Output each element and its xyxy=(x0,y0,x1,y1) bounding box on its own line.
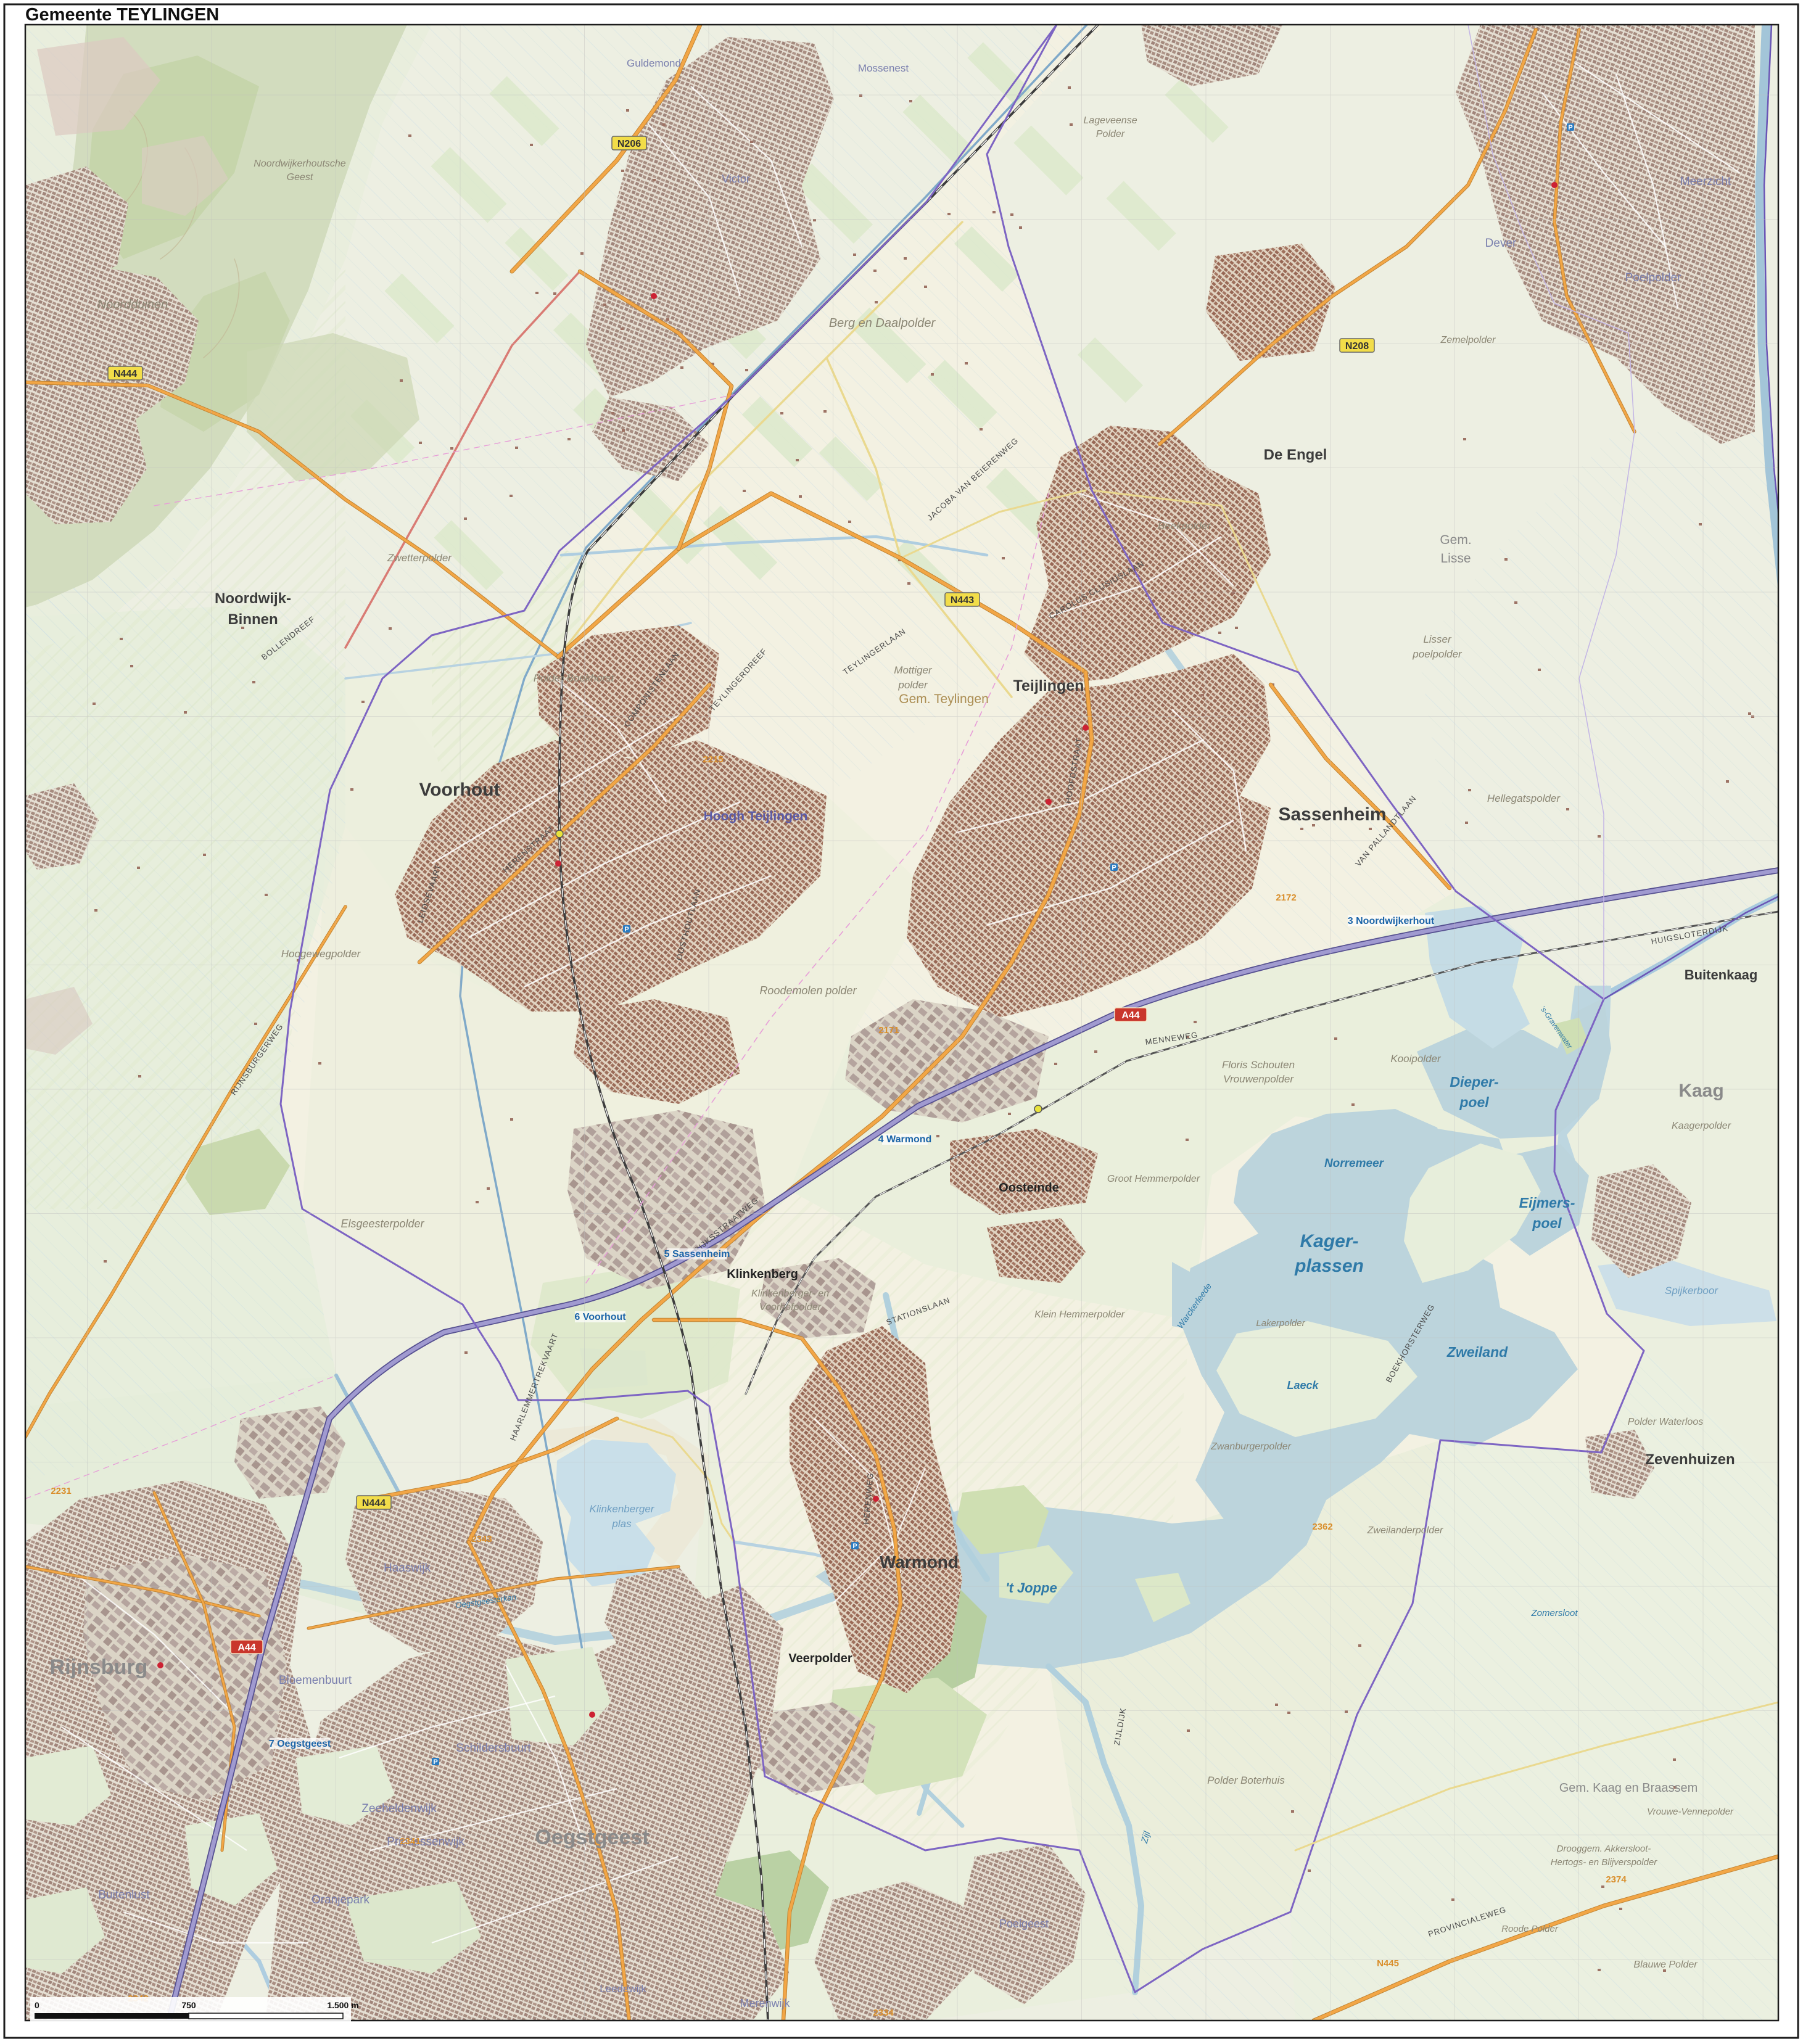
svg-text:5 Sassenheim: 5 Sassenheim xyxy=(664,1249,730,1259)
svg-text:2334: 2334 xyxy=(873,2008,894,2018)
svg-text:Polder Boekhorst: Polder Boekhorst xyxy=(534,672,615,684)
svg-text:plassen: plassen xyxy=(1294,1256,1364,1276)
svg-text:Beekpolder: Beekpolder xyxy=(1158,520,1211,532)
svg-text:N206: N206 xyxy=(617,139,641,149)
svg-text:Lisser: Lisser xyxy=(1423,633,1452,645)
svg-text:Oranjepark: Oranjepark xyxy=(312,1894,369,1906)
svg-text:2171: 2171 xyxy=(878,1025,899,1036)
svg-text:poel: poel xyxy=(1459,1094,1489,1110)
svg-text:Buitenlust: Buitenlust xyxy=(98,1889,150,1902)
svg-text:Polder: Polder xyxy=(1096,129,1125,139)
svg-text:Klinkenberger: Klinkenberger xyxy=(590,1503,655,1515)
svg-text:Mossenest: Mossenest xyxy=(858,62,909,74)
svg-text:Norremeer: Norremeer xyxy=(1324,1157,1385,1170)
svg-text:Sassenheim: Sassenheim xyxy=(1278,804,1386,825)
svg-text:P: P xyxy=(624,926,629,933)
svg-text:Zwetterpolder: Zwetterpolder xyxy=(387,552,452,564)
svg-text:N444: N444 xyxy=(362,1498,386,1509)
svg-text:Leedewijk: Leedewijk xyxy=(600,1983,646,1995)
svg-text:Schildersbuurt: Schildersbuurt xyxy=(456,1742,531,1755)
svg-text:Klinkenberg: Klinkenberg xyxy=(727,1267,798,1281)
svg-text:Geest: Geest xyxy=(287,172,313,183)
svg-text:Bloemenbuurt: Bloemenbuurt xyxy=(279,1674,352,1687)
svg-text:P: P xyxy=(1568,124,1572,131)
svg-text:750: 750 xyxy=(181,2000,196,2010)
svg-text:N208: N208 xyxy=(1345,341,1369,352)
svg-text:Haaswijk: Haaswijk xyxy=(384,1562,431,1575)
svg-text:Mottiger: Mottiger xyxy=(894,664,933,676)
svg-text:2215: 2215 xyxy=(703,754,723,765)
svg-text:1.500 m: 1.500 m xyxy=(327,2000,358,2010)
svg-text:Zweiland: Zweiland xyxy=(1446,1344,1508,1360)
svg-text:Roode Polder: Roode Polder xyxy=(1501,1924,1559,1934)
svg-text:Hoogewegpolder: Hoogewegpolder xyxy=(281,948,361,960)
svg-text:Spijkerboor: Spijkerboor xyxy=(1665,1285,1718,1296)
svg-text:Laeck: Laeck xyxy=(1287,1379,1319,1391)
svg-text:7 Oegstgeest: 7 Oegstgeest xyxy=(269,1739,331,1749)
svg-text:Zweilanderpolder: Zweilanderpolder xyxy=(1367,1525,1443,1536)
svg-text:6 Voorhout: 6 Voorhout xyxy=(574,1312,626,1322)
svg-text:Elsgeesterpolder: Elsgeesterpolder xyxy=(340,1218,424,1230)
svg-text:Drooggem. Akkersloot-: Drooggem. Akkersloot- xyxy=(1557,1844,1651,1854)
svg-text:De Engel: De Engel xyxy=(1264,447,1327,463)
svg-text:A44: A44 xyxy=(1121,1010,1139,1021)
svg-text:Merenwijk: Merenwijk xyxy=(740,1997,790,2009)
svg-text:Lakerpolder: Lakerpolder xyxy=(1256,1318,1305,1329)
svg-text:polder: polder xyxy=(897,679,928,691)
svg-text:Gem.: Gem. xyxy=(1440,533,1471,547)
svg-text:Vrouwe-Vennepolder: Vrouwe-Vennepolder xyxy=(1647,1807,1734,1817)
svg-text:Kaagerpolder: Kaagerpolder xyxy=(1672,1121,1731,1131)
svg-text:Oegstgeest: Oegstgeest xyxy=(535,1826,649,1849)
svg-text:Noordduinen: Noordduinen xyxy=(97,298,168,311)
svg-text:Buitenkaag: Buitenkaag xyxy=(1685,967,1758,983)
svg-text:2374: 2374 xyxy=(1606,1874,1627,1885)
svg-text:3 Noordwijkerhout: 3 Noordwijkerhout xyxy=(1348,916,1435,926)
svg-text:Guldemond: Guldemond xyxy=(627,57,681,69)
svg-text:Groot Hemmerpolder: Groot Hemmerpolder xyxy=(1107,1174,1200,1184)
svg-text:Blauwe Polder: Blauwe Polder xyxy=(1633,1960,1698,1970)
svg-text:Teijlingen: Teijlingen xyxy=(1013,677,1084,694)
svg-text:Polder Waterloos: Polder Waterloos xyxy=(1628,1417,1703,1427)
svg-text:Binnen: Binnen xyxy=(228,611,278,628)
svg-text:P: P xyxy=(852,1543,857,1550)
svg-text:Dieper-: Dieper- xyxy=(1450,1074,1498,1090)
svg-text:Lisse: Lisse xyxy=(1440,551,1471,566)
svg-text:N444: N444 xyxy=(113,369,137,379)
svg-text:2341: 2341 xyxy=(400,1836,420,1847)
svg-text:Rijnsburg: Rijnsburg xyxy=(50,1655,148,1679)
svg-text:0: 0 xyxy=(35,2000,39,2010)
svg-text:2231: 2231 xyxy=(51,1486,71,1496)
svg-text:A44: A44 xyxy=(237,1642,255,1653)
svg-text:Poelpolder: Poelpolder xyxy=(1625,271,1682,284)
svg-text:Floris Schouten: Floris Schouten xyxy=(1222,1059,1295,1071)
svg-text:Kager-: Kager- xyxy=(1300,1231,1358,1251)
svg-text:Berg en Daalpolder: Berg en Daalpolder xyxy=(829,316,936,330)
svg-text:Klinkenberger- en: Klinkenberger- en xyxy=(751,1288,829,1299)
svg-text:'t Joppe: 't Joppe xyxy=(1005,1580,1057,1596)
svg-text:Prinsessenwijk: Prinsessenwijk xyxy=(387,1836,464,1848)
svg-text:poel: poel xyxy=(1532,1215,1562,1231)
svg-text:Zomersloot: Zomersloot xyxy=(1530,1608,1578,1618)
svg-text:Zevenhuizen: Zevenhuizen xyxy=(1645,1451,1735,1468)
svg-text:Hellegatspolder: Hellegatspolder xyxy=(1487,793,1561,804)
svg-text:Victor: Victor xyxy=(722,173,750,185)
svg-text:2362: 2362 xyxy=(1312,1522,1332,1532)
svg-text:2172: 2172 xyxy=(1276,892,1296,903)
svg-text:Hertogs- en Blijverspolder: Hertogs- en Blijverspolder xyxy=(1551,1857,1658,1868)
svg-text:Klein Hemmerpolder: Klein Hemmerpolder xyxy=(1034,1309,1125,1320)
svg-text:Zemelpolder: Zemelpolder xyxy=(1440,335,1496,345)
svg-text:Gem. Teylingen: Gem. Teylingen xyxy=(899,692,989,706)
svg-text:Gemeente TEYLINGEN: Gemeente TEYLINGEN xyxy=(25,5,219,25)
svg-text:Poelgeest: Poelgeest xyxy=(999,1918,1049,1930)
svg-text:Kaag: Kaag xyxy=(1678,1081,1723,1101)
svg-text:P: P xyxy=(433,1758,437,1766)
svg-text:Oosteinde: Oosteinde xyxy=(999,1181,1059,1195)
svg-text:Meerzicht: Meerzicht xyxy=(1680,175,1731,188)
svg-text:Lageveense: Lageveense xyxy=(1083,115,1137,126)
svg-text:Zwanburgerpolder: Zwanburgerpolder xyxy=(1210,1441,1292,1452)
svg-text:Warmond: Warmond xyxy=(880,1552,959,1572)
svg-text:plas: plas xyxy=(611,1518,632,1530)
svg-text:Zeeheldenwijk: Zeeheldenwijk xyxy=(361,1802,437,1815)
svg-text:poelpolder: poelpolder xyxy=(1412,648,1463,660)
svg-text:Veerpolder: Veerpolder xyxy=(788,1652,852,1665)
svg-text:Gem. Kaag en Braassem: Gem. Kaag en Braassem xyxy=(1559,1781,1698,1795)
svg-text:Vrouwenpolder: Vrouwenpolder xyxy=(1223,1073,1294,1085)
svg-text:Noordwijk-: Noordwijk- xyxy=(215,590,291,607)
svg-text:Voorhout: Voorhout xyxy=(419,780,500,800)
svg-text:Kooipolder: Kooipolder xyxy=(1390,1053,1442,1065)
svg-text:Hoogh Teijlingen: Hoogh Teijlingen xyxy=(704,809,808,823)
svg-text:Noordwijkerhoutsche: Noordwijkerhoutsche xyxy=(254,159,346,169)
svg-text:N445: N445 xyxy=(1377,1958,1399,1969)
svg-text:4 Warmond: 4 Warmond xyxy=(878,1134,932,1145)
svg-text:Roodemolen polder: Roodemolen polder xyxy=(759,984,857,997)
svg-text:P: P xyxy=(1112,864,1116,872)
svg-text:Eijmers-: Eijmers- xyxy=(1519,1195,1575,1211)
svg-text:Dever: Dever xyxy=(1485,237,1517,250)
svg-text:Polder Boterhuis: Polder Boterhuis xyxy=(1207,1774,1285,1786)
svg-text:Voorhofpolder: Voorhofpolder xyxy=(759,1302,822,1313)
svg-text:N443: N443 xyxy=(951,595,974,606)
svg-text:2343: 2343 xyxy=(471,1534,492,1544)
